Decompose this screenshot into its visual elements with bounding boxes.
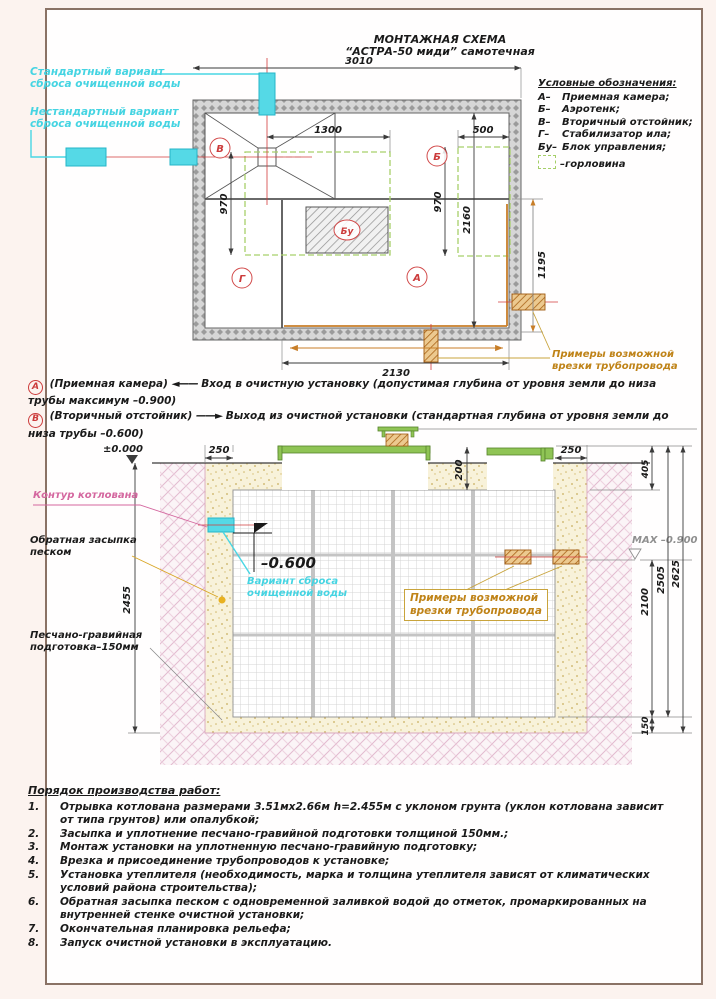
legend-value: –горловина xyxy=(560,159,625,170)
arrow-left-icon: ◄—— xyxy=(172,378,198,390)
work-item: 3.Монтаж установки на уплотненную песчан… xyxy=(28,841,680,855)
section-pipe-examples-label: Примеры возможной врезки трубопровода xyxy=(404,589,548,621)
work-item-number: 2. xyxy=(28,828,60,842)
neck-symbol xyxy=(538,155,556,169)
label-line: сброса очищенной воды xyxy=(30,78,180,90)
label-line: Примеры возможной xyxy=(552,349,678,361)
work-item-text: Монтаж установки на уплотненную песчано-… xyxy=(60,841,680,855)
note-b-title: (Вторичный отстойник) xyxy=(50,410,193,422)
chamber-label-bu: Бу xyxy=(341,227,355,237)
soil-left xyxy=(160,463,205,765)
note-a-title: (Приемная камера) xyxy=(50,378,168,390)
work-item: 4.Врезка и присоединение трубопроводов к… xyxy=(28,855,680,869)
legend-key: Г– xyxy=(538,129,562,142)
chamber-label-g: Г xyxy=(239,274,246,285)
work-order-title: Порядок производства работ: xyxy=(28,784,680,798)
dim-405-label: 405 xyxy=(641,460,651,480)
work-item-text: Врезка и присоединение трубопроводов к у… xyxy=(60,855,680,869)
dim-200-label: 200 xyxy=(454,460,465,481)
work-item-text: Окончательная планировка рельефа; xyxy=(60,923,680,937)
work-item: 2.Засыпка и уплотнение песчано-гравийной… xyxy=(28,828,680,842)
backfill-marker-dot xyxy=(219,597,226,604)
legend-item-g: Г–Стабилизатор ила; xyxy=(538,129,700,142)
dim-970-left-label: 970 xyxy=(219,194,230,215)
label-line: Нестандартный вариант xyxy=(30,106,180,118)
nonstandard-discharge-label: Нестандартный вариант сброса очищенной в… xyxy=(30,106,180,130)
label-line: сброса очищенной воды xyxy=(30,118,180,130)
work-item: 7.Окончательная планировка рельефа; xyxy=(28,923,680,937)
work-item: 5.Установка утеплителя (необходимость, м… xyxy=(28,869,680,896)
drawing-sheet: 3010 xyxy=(0,0,716,999)
legend-value: Стабилизатор ила; xyxy=(562,129,671,140)
label-line: Вариант сброса xyxy=(247,576,347,588)
dim-150-label: 150 xyxy=(641,717,651,736)
work-item-text: Запуск очистной установки в эксплуатацию… xyxy=(60,937,680,951)
legend-item-gorlovina: –горловина xyxy=(538,155,700,172)
dim-1300-label: 1300 xyxy=(314,125,342,136)
inlet-pipe-stub-bottom xyxy=(424,330,438,362)
legend-value: Приемная камера; xyxy=(562,92,669,103)
label-line: Примеры возможной xyxy=(410,592,542,605)
level-0600-label: –0.600 xyxy=(261,554,316,572)
legend-key: Бу– xyxy=(538,142,562,155)
label-line: Песчано-гравийная xyxy=(30,630,142,642)
discharge-variant-label: Вариант сброса очищенной воды xyxy=(247,576,347,600)
pit-contour-label: Контур котлована xyxy=(33,490,138,502)
standard-discharge-label: Стандартный вариант сброса очищенной вод… xyxy=(30,66,180,90)
chamber-label-v: В xyxy=(216,144,224,155)
label-line: врезки трубопровода xyxy=(410,605,542,618)
work-item-number: 1. xyxy=(28,801,60,828)
label-line: песком xyxy=(30,547,137,559)
work-item-number: 8. xyxy=(28,937,60,951)
legend-key: В– xyxy=(538,117,562,130)
plan-pipe-examples-label: Примеры возможной врезки трубопровода xyxy=(552,349,678,373)
soil-right xyxy=(587,463,632,765)
legend-key: А– xyxy=(538,92,562,105)
dim-970-right-label: 970 xyxy=(433,192,444,213)
lid-left xyxy=(278,446,430,453)
note-b-circle: В xyxy=(28,413,43,428)
legend-item-a: А–Приемная камера; xyxy=(538,92,700,105)
work-item: 8.Запуск очистной установки в эксплуатац… xyxy=(28,937,680,951)
title-line-2: “АСТРА-50 миди” самотечная xyxy=(330,46,550,58)
work-item-number: 3. xyxy=(28,841,60,855)
work-item-number: 5. xyxy=(28,869,60,896)
note-b: В (Вторичный отстойник) ——► Выход из очи… xyxy=(28,410,690,441)
label-line: подготовка–150мм xyxy=(30,642,142,654)
work-item: 6.Обратная засыпка песком с одновременно… xyxy=(28,896,680,923)
legend-key: Б– xyxy=(538,104,562,117)
note-a: А (Приемная камера) ◄—— Вход в очистную … xyxy=(28,378,690,409)
note-a-circle: А xyxy=(28,380,43,395)
drawing-title: МОНТАЖНАЯ СХЕМА “АСТРА-50 миди” самотечн… xyxy=(330,34,550,58)
work-item-number: 4. xyxy=(28,855,60,869)
dim-2160-label: 2160 xyxy=(462,206,473,234)
section-view: ±0.000 –0.600 MAX –0.900 250 250 200 xyxy=(33,427,698,765)
chamber-label-b: Б xyxy=(433,152,441,163)
label-line: Стандартный вариант xyxy=(30,66,180,78)
level-max-label: MAX –0.900 xyxy=(632,535,698,546)
dim-250-right-label: 250 xyxy=(561,445,582,456)
legend-value: Аэротенк; xyxy=(562,104,620,115)
legend-title: Условные обозначения: xyxy=(538,78,700,91)
legend: Условные обозначения: А–Приемная камера;… xyxy=(538,78,700,171)
plan-view: 3010 xyxy=(31,56,558,379)
label-line: очищенной воды xyxy=(247,588,347,600)
work-item-text: Засыпка и уплотнение песчано-гравийной п… xyxy=(60,828,680,842)
chamber-label-a: А xyxy=(412,273,421,284)
legend-item-bu: Бу–Блок управления; xyxy=(538,142,700,155)
work-item-text: Отрывка котлована размерами 3.51мх2.66м … xyxy=(60,801,680,828)
work-item-text: Установка утеплителя (необходимость, мар… xyxy=(60,869,680,896)
label-line: врезки трубопровода xyxy=(552,361,678,373)
work-item: 1.Отрывка котлована размерами 3.51мх2.66… xyxy=(28,801,680,828)
dim-500-label: 500 xyxy=(473,125,494,136)
dim-2100-label: 2100 xyxy=(640,588,651,616)
sand-backfill-label: Обратная засыпка песком xyxy=(30,535,137,559)
work-order-list: Порядок производства работ: 1.Отрывка ко… xyxy=(28,784,680,950)
left-wall-pipe-stub xyxy=(170,149,197,165)
level-zero-label: ±0.000 xyxy=(103,444,143,455)
work-item-number: 7. xyxy=(28,923,60,937)
dim-2505-label: 2505 xyxy=(656,566,667,594)
legend-value: Блок управления; xyxy=(562,142,666,153)
plan-notes: А (Приемная камера) ◄—— Вход в очистную … xyxy=(28,378,690,442)
legend-item-b: Б–Аэротенк; xyxy=(538,104,700,117)
legend-item-v: В–Вторичный отстойник; xyxy=(538,117,700,130)
work-item-number: 6. xyxy=(28,896,60,923)
arrow-right-icon: ——► xyxy=(196,410,222,422)
inlet-pipe-stub-right xyxy=(512,294,545,310)
legend-value: Вторичный отстойник; xyxy=(562,117,693,128)
standard-discharge-pipe xyxy=(259,73,275,115)
work-item-text: Обратная засыпка песком с одновременной … xyxy=(60,896,680,923)
label-line: Обратная засыпка xyxy=(30,535,137,547)
dim-2455-label: 2455 xyxy=(122,586,133,614)
dim-250-left-label: 250 xyxy=(209,445,230,456)
sand-gravel-prep-label: Песчано-гравийная подготовка–150мм xyxy=(30,630,142,654)
dim-2625-label: 2625 xyxy=(671,560,682,588)
dim-1195-label: 1195 xyxy=(537,251,548,279)
soil-bottom xyxy=(160,733,632,765)
nonstandard-discharge-pipe xyxy=(66,148,106,166)
